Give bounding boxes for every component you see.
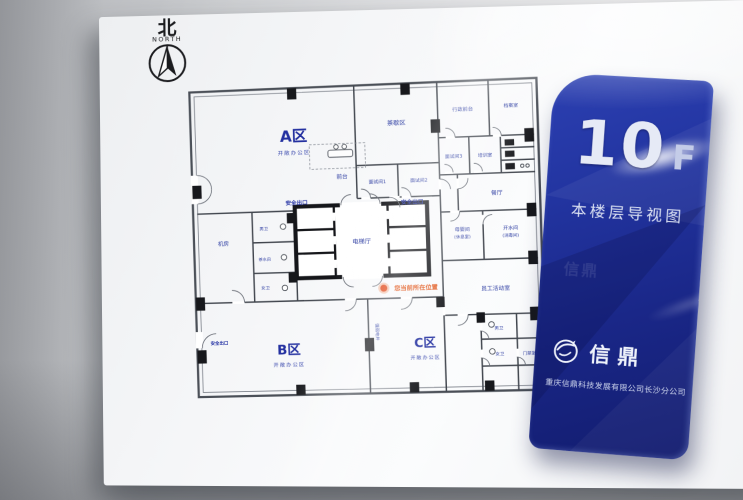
exit-label-right: 安全出口 bbox=[401, 197, 424, 206]
zone-c-label: C区 bbox=[414, 335, 436, 350]
shaft-label: 强弱电井 bbox=[374, 323, 382, 340]
exit-label-bottom-left: 安全出口 bbox=[210, 340, 228, 347]
compass-icon: 北 NORTH bbox=[138, 19, 196, 89]
room-label-activity: 员工活动室 bbox=[481, 284, 511, 293]
floor-number: 10 bbox=[572, 111, 668, 180]
room-label-interview3: 面试间3 bbox=[445, 152, 463, 160]
floor-unit: F bbox=[671, 137, 698, 179]
room-label-training: 培训室 bbox=[478, 151, 493, 159]
room-label-nursing: 母婴间 bbox=[455, 226, 470, 234]
room-label-male-wc-2: 男卫 bbox=[494, 325, 504, 331]
zone-a-label: A区 bbox=[280, 127, 308, 146]
room-label-female-wc-2: 女卫 bbox=[495, 350, 505, 357]
you-are-here-marker: 您当前所在位置 bbox=[378, 281, 438, 294]
room-label-admin: 行政前台 bbox=[452, 105, 473, 113]
room-label-dining: 餐厅 bbox=[491, 188, 503, 197]
floor-number-block: 10 F bbox=[572, 111, 698, 182]
room-label-water-sub: (消毒间) bbox=[502, 231, 519, 239]
room-label-reception: 前台 bbox=[336, 172, 348, 181]
room-label-elevator: 电梯厅 bbox=[352, 237, 371, 246]
photo-stage: 北 NORTH bbox=[0, 0, 743, 500]
floor-info-panel: 10 F 本楼层导视图 信鼎 信鼎 重庆信鼎科技发展有限公司长沙分公司 bbox=[528, 73, 714, 461]
room-label-interview1: 面试间1 bbox=[369, 178, 387, 186]
zone-c-sublabel: 开敞办公区 bbox=[410, 354, 440, 362]
room-label-nursing-sub: (休息室) bbox=[454, 233, 471, 241]
brand-name: 信鼎 bbox=[588, 338, 647, 372]
compass-arrow-icon bbox=[145, 40, 189, 85]
sign-board: 北 NORTH bbox=[99, 0, 743, 489]
room-label-tea: 茶歇区 bbox=[387, 119, 406, 128]
exit-label-left: 安全出口 bbox=[285, 198, 307, 207]
zone-b-label: B区 bbox=[277, 342, 301, 359]
floor-plan: A区 开敞办公区 B区 开敞办公区 C区 开敞办公区 茶歇区 行政前台 档案室 … bbox=[187, 75, 549, 405]
zone-a-sublabel: 开敞办公区 bbox=[278, 148, 311, 157]
room-label-water: 开水间 bbox=[503, 224, 519, 232]
room-label-female-wc: 女卫 bbox=[261, 284, 271, 291]
room-label-machine: 机房 bbox=[218, 240, 230, 248]
room-label-interview2: 面试间2 bbox=[410, 176, 428, 184]
zone-b-sublabel: 开敞办公区 bbox=[273, 361, 305, 369]
panel-watermark: 信鼎 bbox=[563, 258, 600, 282]
room-label-pantry: 茶水间 bbox=[258, 256, 270, 262]
brand-logo-icon bbox=[551, 336, 581, 366]
room-label-archive: 档案室 bbox=[503, 102, 518, 110]
room-label-male-wc: 男卫 bbox=[259, 226, 268, 232]
you-are-here-label: 您当前所在位置 bbox=[394, 283, 438, 292]
